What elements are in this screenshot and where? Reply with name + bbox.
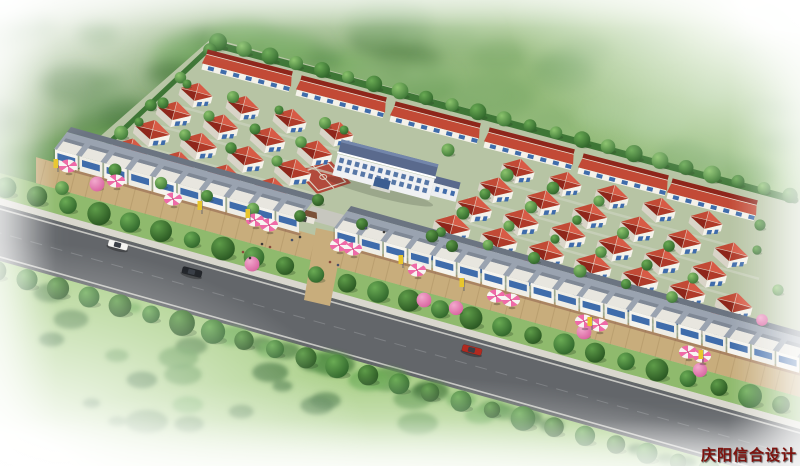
- blossom-tree: [417, 293, 432, 308]
- site-plan-scene: [0, 0, 800, 466]
- person: [261, 243, 264, 246]
- person: [242, 251, 245, 254]
- blossom-tree: [693, 363, 707, 377]
- person: [383, 231, 386, 234]
- watermark-text: 庆阳信合设计: [701, 444, 797, 465]
- blossom-tree: [449, 301, 463, 315]
- person: [337, 264, 340, 267]
- person: [291, 239, 294, 242]
- blossom-tree: [245, 257, 260, 272]
- person: [329, 261, 332, 264]
- person: [249, 257, 252, 260]
- aerial-rendering: 庆阳信合设计: [0, 0, 800, 466]
- person: [365, 227, 368, 230]
- person: [299, 236, 302, 239]
- blossom-tree: [90, 177, 105, 192]
- person: [269, 246, 272, 249]
